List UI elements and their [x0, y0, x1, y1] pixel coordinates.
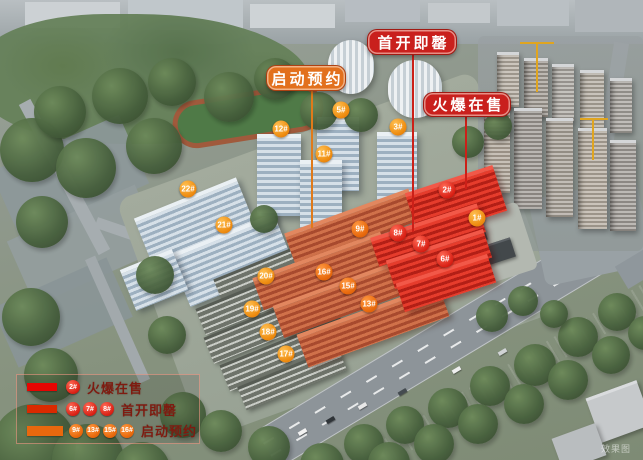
aerial-render: 启动预约 首开即罄 火爆在售 5#12#3#11#22#2#1#21#9#8#7…	[0, 0, 643, 460]
city-tower	[610, 78, 632, 133]
tree	[508, 286, 538, 316]
tree	[540, 300, 568, 328]
callout-label: 启动预约	[268, 68, 343, 89]
leader-line-hot	[465, 112, 467, 189]
tree	[56, 138, 116, 198]
tree	[204, 72, 254, 122]
tree	[136, 256, 174, 294]
legend-badges: 9#13#15#16#	[69, 424, 134, 438]
building-badge-2: 2#	[439, 182, 456, 199]
tree	[114, 442, 170, 460]
tree	[250, 205, 278, 233]
tree	[452, 126, 484, 158]
building-badge-8: 8#	[390, 225, 407, 242]
building-badge-1: 1#	[469, 210, 486, 227]
building-badge-21: 21#	[216, 217, 233, 234]
leader-line-reserve	[311, 88, 313, 228]
building-badge-6: 6#	[437, 251, 454, 268]
legend: 2# 火爆在售 6#7#8# 首开即罄 9#13#15#16# 启动预约	[16, 374, 200, 444]
tree	[34, 86, 86, 138]
legend-swatch	[27, 383, 57, 391]
building-badge-12: 12#	[273, 121, 290, 138]
building-badge-9: 9#	[352, 221, 369, 238]
residential-tower-12	[257, 134, 301, 216]
city-building	[575, 0, 643, 32]
tree	[248, 426, 290, 460]
building-badge-3: 3#	[390, 119, 407, 136]
car	[452, 366, 462, 374]
legend-badge-8: 8#	[100, 402, 114, 416]
building-badge-18: 18#	[260, 324, 277, 341]
watermark: 效果图	[601, 442, 631, 455]
legend-badge-13: 13#	[86, 424, 100, 438]
tree	[92, 68, 148, 124]
tree	[16, 196, 68, 248]
tree	[344, 98, 378, 132]
legend-label: 火爆在售	[87, 378, 143, 397]
building-badge-11: 11#	[316, 146, 333, 163]
callout-launch-reservation: 启动预约	[266, 65, 346, 91]
tree	[414, 424, 454, 460]
legend-swatch	[27, 405, 57, 413]
legend-badge-7: 7#	[83, 402, 97, 416]
city-building	[428, 3, 490, 23]
building-badge-5: 5#	[333, 102, 350, 119]
tree	[504, 384, 544, 424]
callout-label: 首开即罄	[374, 32, 449, 53]
leader-line-soldout	[412, 52, 414, 232]
legend-badges: 2#	[66, 380, 80, 394]
tree	[126, 118, 182, 174]
legend-badge-6: 6#	[66, 402, 80, 416]
building-badge-19: 19#	[244, 301, 261, 318]
legend-badges: 6#7#8#	[66, 402, 114, 416]
legend-badge-2: 2#	[66, 380, 80, 394]
legend-label: 启动预约	[141, 421, 197, 440]
tree	[476, 300, 508, 332]
legend-row-hot: 2# 火爆在售	[27, 378, 199, 397]
tree	[148, 58, 196, 106]
tree	[200, 410, 242, 452]
building-badge-7: 7#	[413, 236, 430, 253]
legend-badge-15: 15#	[103, 424, 117, 438]
building-badge-17: 17#	[278, 346, 295, 363]
tree	[458, 404, 498, 444]
building-badge-16: 16#	[316, 264, 333, 281]
crane-icon	[580, 118, 608, 120]
legend-badge-9: 9#	[69, 424, 83, 438]
legend-swatch	[27, 426, 63, 436]
tree	[148, 316, 186, 354]
city-tower	[610, 140, 636, 231]
building-badge-13: 13#	[361, 296, 378, 313]
building-badge-15: 15#	[340, 278, 357, 295]
tree	[592, 336, 630, 374]
callout-label: 火爆在售	[429, 94, 504, 115]
city-tower	[546, 118, 573, 217]
legend-row-soldout: 6#7#8# 首开即罄	[27, 400, 199, 419]
tree	[2, 288, 60, 346]
building-badge-22: 22#	[180, 181, 197, 198]
callout-hot-selling: 火爆在售	[423, 92, 511, 117]
city-tower	[552, 64, 574, 121]
crane-icon	[592, 118, 594, 160]
city-building	[497, 0, 569, 26]
tree	[548, 360, 588, 400]
legend-row-reservation: 9#13#15#16# 启动预约	[27, 421, 199, 440]
city-building	[250, 4, 335, 28]
car	[498, 348, 508, 356]
crane-icon	[520, 42, 554, 44]
crane-icon	[536, 42, 538, 92]
legend-label: 首开即罄	[121, 400, 177, 419]
building-badge-20: 20#	[258, 268, 275, 285]
city-building	[345, 0, 420, 22]
city-tower	[514, 108, 542, 209]
legend-badge-16: 16#	[120, 424, 134, 438]
callout-first-open-soldout: 首开即罄	[367, 29, 457, 55]
